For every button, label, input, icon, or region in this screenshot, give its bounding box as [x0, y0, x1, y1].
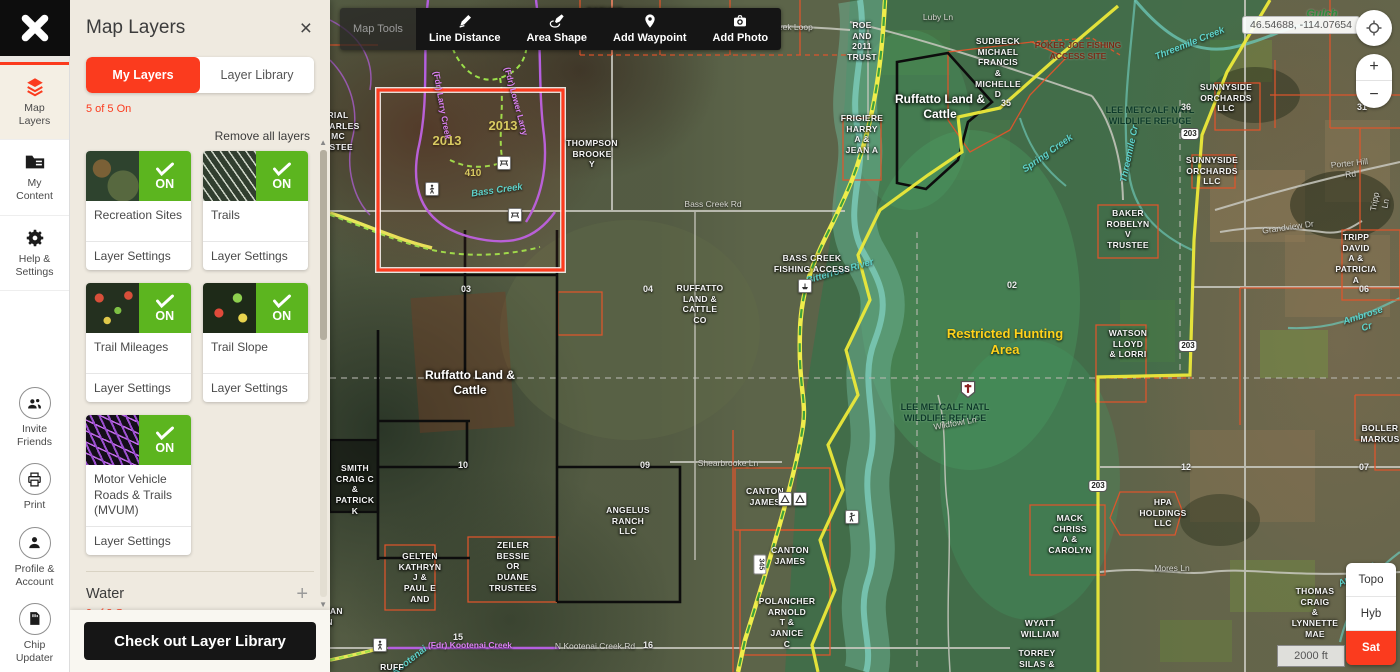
map-label-owner: RUFF — [380, 662, 404, 672]
tab-layer-library[interactable]: Layer Library — [200, 57, 314, 93]
layer-settings-link[interactable]: Layer Settings — [203, 241, 308, 270]
layer-name: Trail Slope — [203, 333, 308, 373]
check-out-layer-library-button[interactable]: Check out Layer Library — [84, 622, 316, 660]
basemap-hyb-button[interactable]: Hyb — [1346, 597, 1396, 631]
sidebar-item-invite-friends[interactable]: Invite Friends — [0, 380, 69, 456]
map-label-road: Porter Hill Rd — [1324, 155, 1376, 181]
layer-settings-link[interactable]: Layer Settings — [86, 373, 191, 402]
map-label-road: Luby Ln — [923, 12, 953, 23]
camera-icon — [732, 13, 748, 29]
map-label-year: 2013 — [489, 118, 518, 134]
map-canvas[interactable]: ESTHERLarry Creek LoopLuby LnROE AND 201… — [330, 0, 1400, 672]
map-pin-icon — [642, 13, 658, 29]
layer-toggle[interactable]: ON — [86, 151, 191, 201]
restricted-shield-icon — [960, 380, 976, 399]
sidebar-item-label: Profile & Account — [15, 563, 55, 589]
map-label-owner: RIAL CHARLES MC USTEE — [330, 110, 360, 153]
sidebar-item-label: My Content — [16, 177, 53, 203]
map-label-shield: 203 — [1178, 340, 1197, 352]
water-section-title[interactable]: Water — [86, 586, 124, 602]
check-icon — [155, 294, 175, 308]
map-label-water: Ambrose Cr — [1342, 304, 1389, 339]
map-label-forest: LEE METCALF NATL WILDLIFE REFUGE — [1106, 105, 1195, 128]
boat-ramp-icon — [798, 279, 812, 293]
map-label-owner: THOMAS CRAIG & LYNNETTE MAE — [1292, 586, 1338, 639]
map-label-owner: ZEILER BESSIE OR DUANE TRUSTEES — [489, 540, 537, 593]
person-icon — [26, 534, 43, 551]
map-label-road: Wildfowl Ln — [933, 414, 978, 432]
map-label-section: 09 — [640, 460, 650, 471]
map-label-section: 02 — [1007, 280, 1017, 291]
map-label-section: 15 — [453, 632, 463, 643]
add-waypoint-button[interactable]: Add Waypoint — [600, 8, 700, 50]
layer-card-mvum: ON Motor Vehicle Roads & Trails (MVUM) L… — [86, 415, 191, 555]
layer-thumbnail — [203, 151, 256, 201]
map-label-owner: SMITH CRAIG C & PATRICK K — [336, 463, 375, 516]
sidebar-item-map-layers[interactable]: Map Layers — [0, 65, 69, 140]
layer-name: Trail Mileages — [86, 333, 191, 373]
map-label-badge: 345 — [754, 555, 767, 575]
map-label-restrict: Restricted Hunting Area — [947, 326, 1063, 359]
crosshair-icon — [1365, 19, 1383, 37]
section-divider — [86, 571, 314, 572]
x-logo-icon — [18, 11, 52, 45]
add-photo-button[interactable]: Add Photo — [700, 8, 782, 50]
hunter-icon — [845, 510, 859, 524]
tab-my-layers[interactable]: My Layers — [86, 57, 200, 93]
panel-footer: Check out Layer Library — [70, 610, 330, 672]
pencil-shape-icon — [549, 13, 565, 29]
sidebar-item-profile-account[interactable]: Profile & Account — [0, 520, 69, 596]
map-label-shield: 203 — [1180, 128, 1199, 140]
sidebar: Map Layers My Content Help & Settings In — [0, 0, 70, 672]
map-label-section: 03 — [461, 284, 471, 295]
map-tools-handle: Map Tools — [340, 8, 416, 50]
sidebar-item-label: Print — [24, 499, 46, 512]
layer-settings-link[interactable]: Layer Settings — [203, 373, 308, 402]
layer-card-recreation-sites: ON Recreation Sites Layer Settings — [86, 151, 191, 270]
locate-button[interactable] — [1356, 10, 1392, 46]
people-icon — [26, 395, 43, 412]
layer-tabs: My Layers Layer Library — [86, 57, 314, 93]
map-label-owner: WATSON LLOYD & LORRI — [1109, 328, 1147, 360]
layer-name: Motor Vehicle Roads & Trails (MVUM) — [86, 465, 191, 526]
map-label-owner: THOMPSON BROOKE Y — [566, 138, 618, 170]
onx-logo[interactable] — [0, 0, 70, 56]
map-label-water: Threemile Cr — [1118, 124, 1142, 183]
layer-card-trails: ON Trails Layer Settings — [203, 151, 308, 270]
sidebar-item-help-settings[interactable]: Help & Settings — [0, 216, 69, 291]
map-label-water: Threemile Creek — [1153, 25, 1226, 64]
layer-toggle[interactable]: ON — [86, 283, 191, 333]
map-label-section: 16 — [643, 640, 653, 651]
layer-thumbnail — [86, 151, 139, 201]
map-label-section: 10 — [458, 460, 468, 471]
map-label-section: 36 — [1181, 102, 1191, 113]
gear-icon — [24, 227, 46, 249]
map-label-year: 2013 — [433, 133, 462, 149]
expand-plus-icon[interactable]: + — [296, 584, 308, 604]
map-label-road: Mores Ln — [1154, 563, 1189, 574]
printer-icon — [26, 471, 43, 488]
map-label-section: 04 — [643, 284, 653, 295]
layer-card-trail-mileages: ON Trail Mileages Layer Settings — [86, 283, 191, 402]
map-label-forest: LEE METCALF NATL WILDLIFE REFUGE — [901, 402, 990, 425]
map-tools-toolbar: Map Tools Line Distance Area Shape Add W… — [340, 8, 781, 50]
map-label-owner: TORREY SILAS & — [1018, 648, 1055, 669]
map-label-owner: POLANCHER ARNOLD T & JANICE C — [759, 596, 816, 649]
layer-toggle[interactable]: ON — [86, 415, 191, 465]
map-label-owner: ROE AND 2011 TRUST — [847, 20, 877, 63]
map-label-owner: BASS CREEK FISHING ACCESS — [774, 253, 850, 274]
map-label-water: Kootenai — [390, 644, 429, 672]
map-label-shield: 203 — [1088, 480, 1107, 492]
map-label-section: 06 — [1359, 284, 1369, 295]
scrollbar-thumb[interactable] — [320, 150, 327, 340]
sidebar-item-print[interactable]: Print — [0, 456, 69, 519]
layer-name: Recreation Sites — [86, 201, 191, 241]
remove-all-layers-link[interactable]: Remove all layers — [86, 129, 310, 143]
layers-on-count: 5 of 5 On — [86, 103, 314, 115]
map-label-owner: CHAPMAN OREN — [330, 606, 343, 627]
map-label-year: 410 — [465, 168, 482, 181]
cursor-coordinates: 46.54688, -114.07654 — [1242, 16, 1360, 34]
check-icon — [272, 162, 292, 176]
map-label-road: Tripp Ln — [1368, 191, 1392, 214]
map-label-owner-lg: Ruffatto Land & Cattle — [895, 92, 985, 122]
layer-toggle[interactable]: ON — [203, 151, 308, 201]
zoom-control: + − — [1356, 54, 1392, 108]
map-label-purple: (Fdr) Larry Creek — [431, 70, 453, 140]
map-label-poi-dark: POKER JOE FISHING ACCESS SITE — [1035, 40, 1121, 61]
map-label-purple: (Fdr) Lower Larry — [502, 66, 530, 137]
map-label-section: 07 — [1359, 462, 1369, 473]
basemap-sat-button[interactable]: Sat — [1346, 631, 1396, 665]
chip-icon — [26, 610, 43, 627]
map-label-road: Shearbrooke Ln — [698, 458, 759, 469]
sidebar-spacer — [0, 291, 69, 380]
map-label-owner-lg: Ruffatto Land & Cattle — [425, 368, 515, 398]
map-label-owner: WYATT WILLIAM — [1021, 618, 1059, 639]
map-labels-layer: ESTHERLarry Creek LoopLuby LnROE AND 201… — [330, 0, 1400, 672]
map-label-water: Bass Creek — [471, 181, 524, 200]
layer-cards: ON Recreation Sites Layer Settings ON Tr… — [70, 147, 330, 555]
sidebar-item-label: Map Layers — [19, 102, 51, 128]
map-label-owner: MACK CHRISS A & CAROLYN — [1048, 513, 1091, 556]
layer-thumbnail — [86, 283, 139, 333]
map-label-purple: (Fdr) Kootenai Creek — [428, 640, 512, 651]
map-label-water: Bitterroot River — [805, 257, 875, 288]
sidebar-item-my-content[interactable]: My Content — [0, 140, 69, 215]
scroll-down-arrow[interactable]: ▼ — [319, 600, 327, 609]
map-label-owner: BAKER ROBELYN V TRUSTEE — [1107, 208, 1150, 251]
map-label-owner: SUDBECK MICHAEL FRANCIS & MICHELLE D — [975, 36, 1021, 100]
camp-icon — [793, 492, 807, 506]
map-label-owner: FRIGIERE HARRY A & JEAN A — [841, 113, 884, 156]
basemap-switcher: Topo Hyb Sat — [1346, 563, 1396, 665]
sidebar-item-label: Help & Settings — [16, 253, 54, 279]
sidebar-item-label: Chip Updater — [16, 639, 53, 665]
map-scale: 2000 ft — [1277, 645, 1345, 667]
map-label-owner: GELTEN KATHRYN J & PAUL E AND — [399, 551, 442, 604]
hiker-icon — [373, 638, 387, 652]
map-label-owner: SUNNYSIDE ORCHARDS LLC — [1200, 82, 1252, 114]
scroll-up-arrow[interactable]: ▲ — [319, 138, 327, 147]
map-label-road: Grandview Dr — [1262, 218, 1315, 236]
map-label-owner: CANTON JAMES — [771, 545, 809, 566]
sidebar-item-chip-updater[interactable]: Chip Updater — [0, 596, 69, 672]
layer-settings-link[interactable]: Layer Settings — [86, 241, 191, 270]
picnic-table-icon — [497, 156, 511, 170]
panel-title: Map Layers — [86, 17, 185, 39]
layer-name: Trails — [203, 201, 308, 241]
layer-thumbnail — [86, 415, 139, 465]
map-label-owner: HPA HOLDINGS LLC — [1139, 497, 1186, 529]
map-label-road: Bass Creek Rd — [684, 199, 741, 210]
panel-scrollbar[interactable] — [320, 150, 327, 597]
map-label-owner: ANGELUS RANCH LLC — [606, 505, 650, 537]
map-label-section: 12 — [1181, 462, 1191, 473]
check-icon — [155, 426, 175, 440]
check-icon — [155, 162, 175, 176]
layer-card-trail-slope: ON Trail Slope Layer Settings — [203, 283, 308, 402]
map-label-road: N Kootenai Creek Rd — [555, 641, 635, 652]
map-label-section: 35 — [1001, 98, 1011, 109]
layer-settings-link[interactable]: Layer Settings — [86, 526, 191, 555]
map-label-owner: RUFFATTO LAND & CATTLE CO — [677, 283, 724, 326]
layer-toggle[interactable]: ON — [203, 283, 308, 333]
check-icon — [272, 294, 292, 308]
layer-thumbnail — [203, 283, 256, 333]
line-distance-button[interactable]: Line Distance — [416, 8, 514, 50]
picnic-table-icon — [508, 208, 522, 222]
camp-icon — [778, 492, 792, 506]
pencil-line-icon — [457, 13, 473, 29]
map-label-owner: BOLLER MARKUS — [1360, 423, 1399, 444]
app-window: Map Layers My Content Help & Settings In — [0, 0, 1400, 672]
folder-icon — [24, 151, 46, 173]
close-icon[interactable]: × — [300, 18, 312, 39]
basemap-topo-button[interactable]: Topo — [1346, 563, 1396, 597]
map-label-owner: TRIPP DAVID A & PATRICIA A — [1335, 232, 1376, 285]
hiker-icon — [425, 182, 439, 196]
map-label-water: Spring Creek — [1020, 132, 1075, 176]
sidebar-item-label: Invite Friends — [17, 423, 52, 449]
map-layers-panel: Map Layers × My Layers Layer Library 5 o… — [70, 0, 330, 672]
map-label-owner: SUNNYSIDE ORCHARDS LLC — [1186, 155, 1238, 187]
map-layers-icon — [24, 76, 46, 98]
area-shape-button[interactable]: Area Shape — [513, 8, 600, 50]
